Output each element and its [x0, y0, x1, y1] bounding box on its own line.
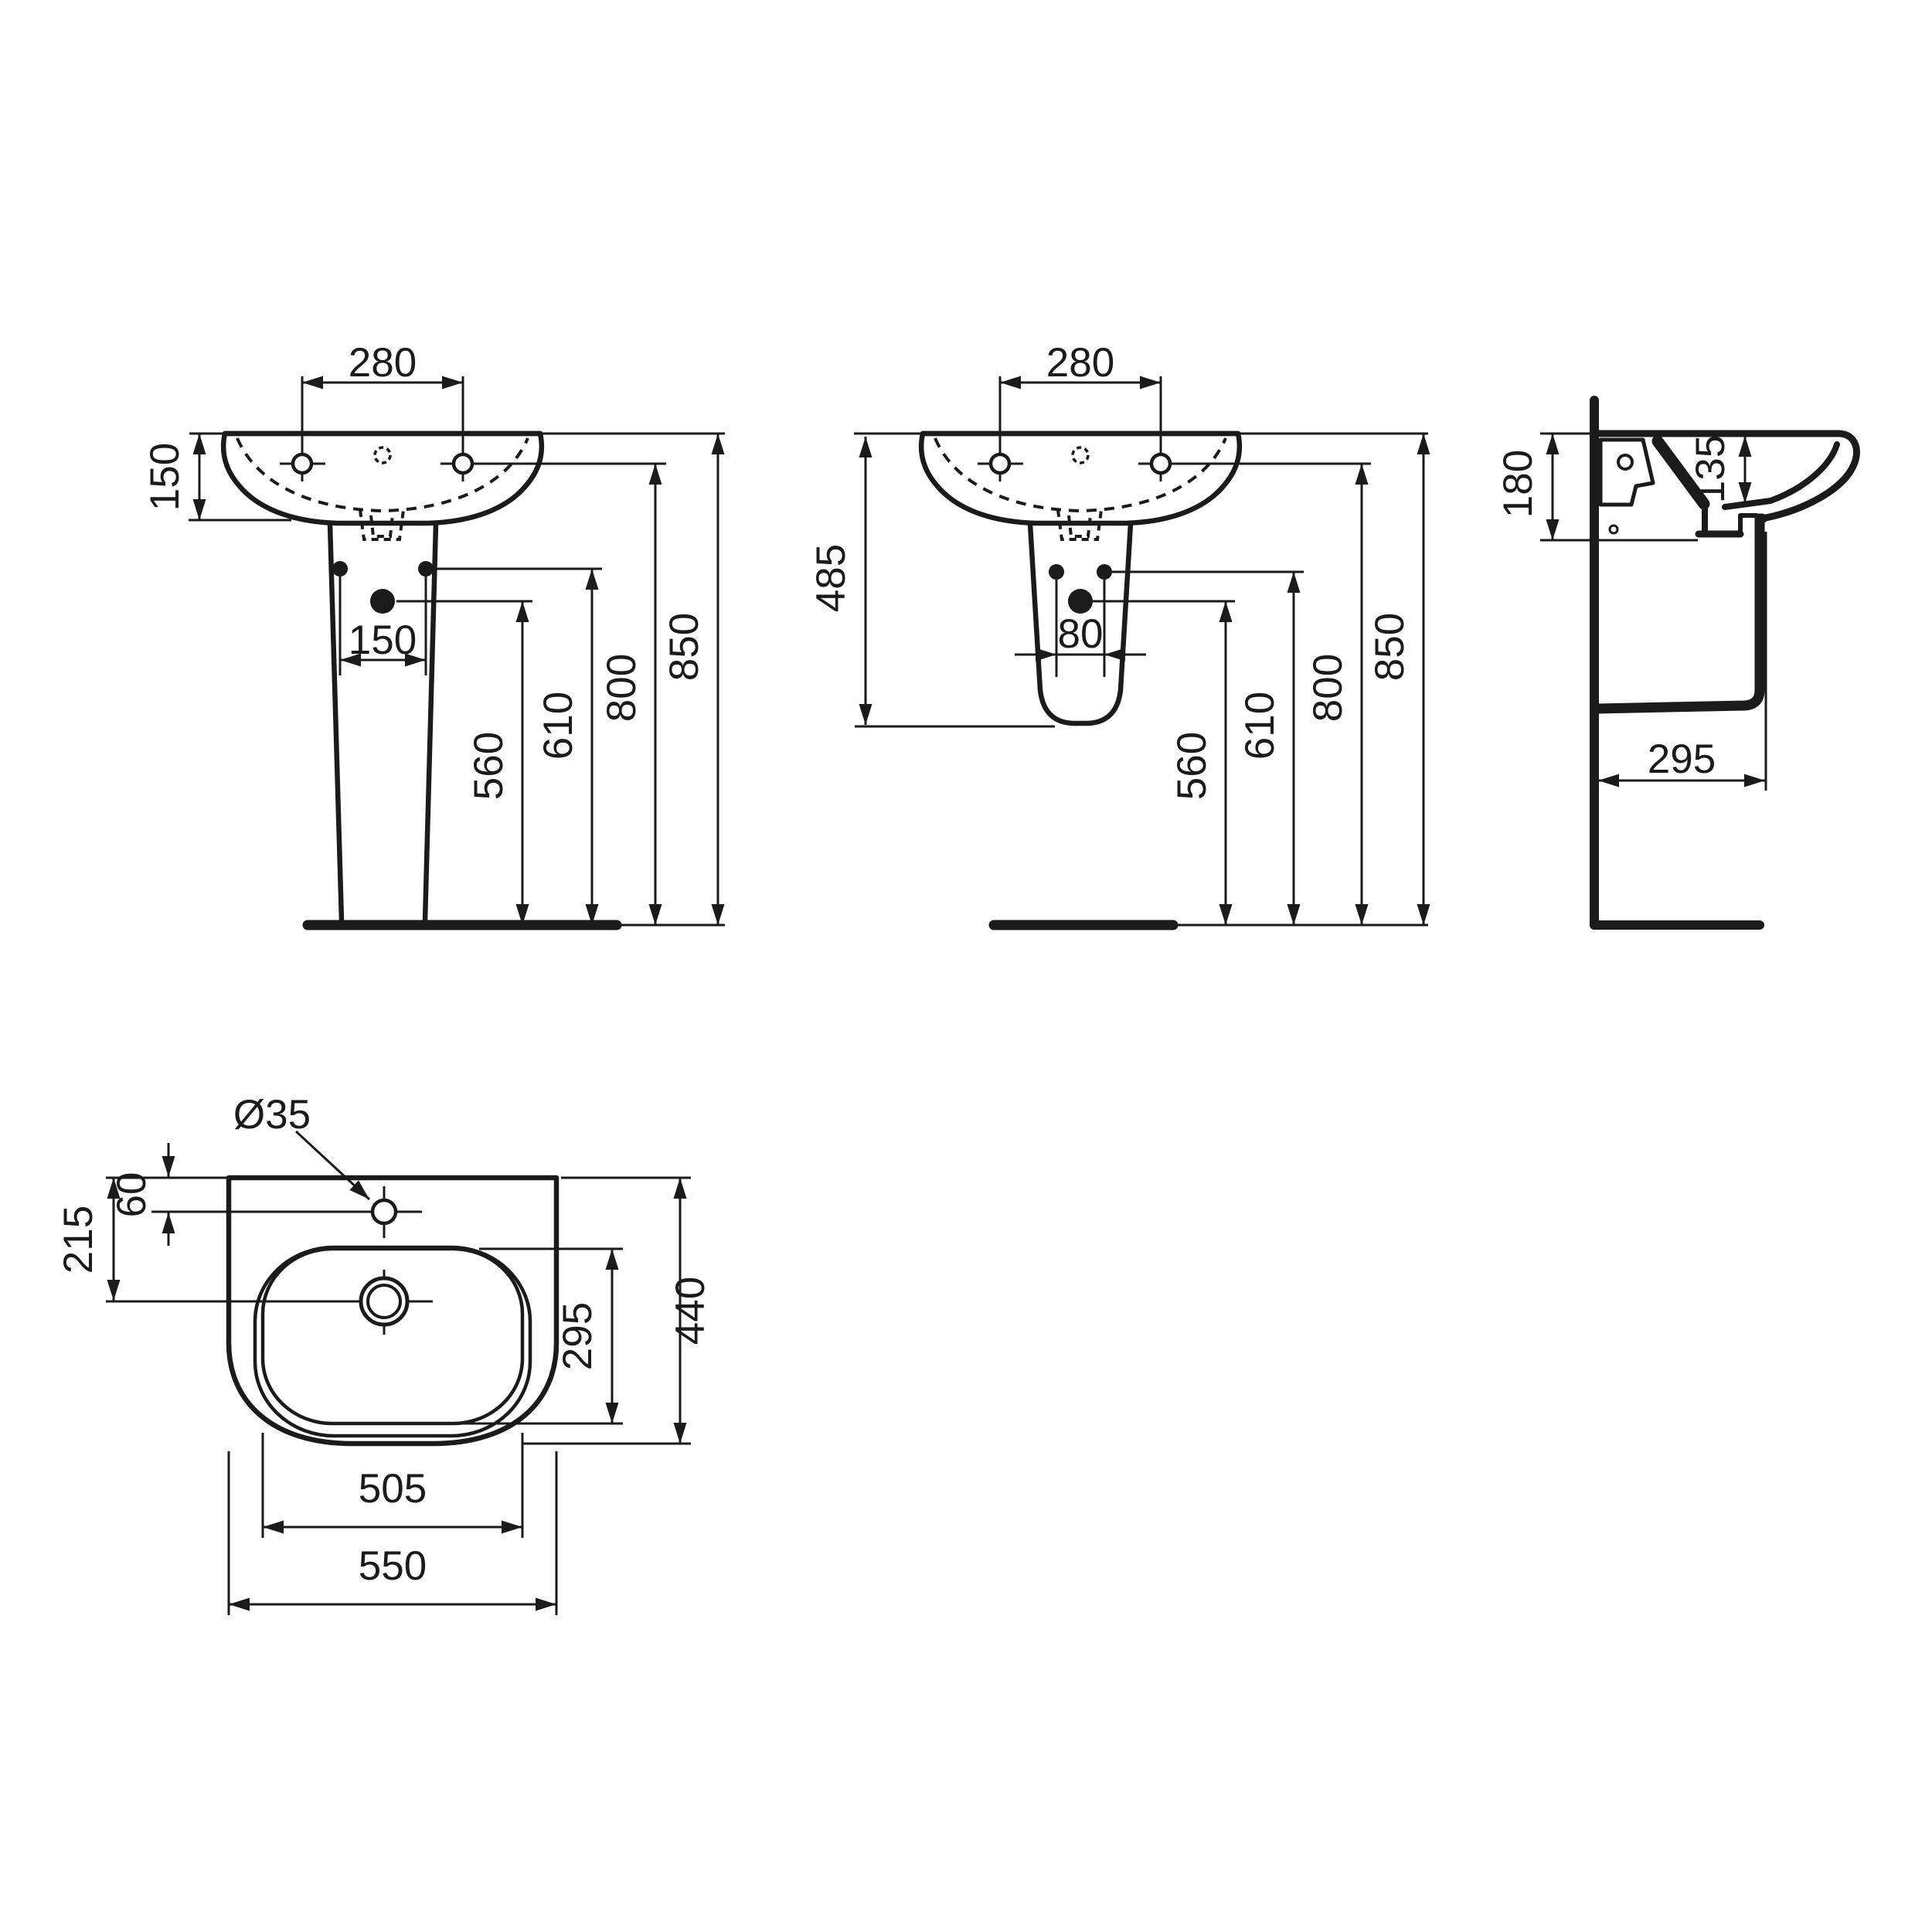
dim-label-rim-height: 850	[1367, 613, 1413, 681]
tap-hole-right	[1151, 454, 1170, 473]
dim-label-taphole-height: 800	[1305, 654, 1351, 722]
dim-label-pedestal-holes: 150	[349, 617, 417, 663]
shroud-profile	[1597, 519, 1762, 709]
dim-label-tap-spacing: 280	[1046, 340, 1114, 386]
view-front-semi-pedestal: 280 485 80 560 610 800 850	[808, 340, 1428, 925]
supply-hole	[1068, 589, 1093, 614]
lower-bolt-hole	[1610, 526, 1617, 533]
dim-label-taphole-offset: 60	[109, 1172, 155, 1218]
fixing-hole-left	[332, 561, 348, 577]
supply-hole	[370, 589, 395, 614]
dim-label-tap-spacing: 280	[349, 340, 417, 386]
fixing-hole-right	[418, 561, 434, 577]
view-side-section: 180 135 295	[1495, 400, 1856, 925]
fixing-bracket	[1600, 440, 1653, 505]
tap-hole-left	[293, 454, 311, 473]
fixing-hole-right	[1097, 564, 1112, 580]
washbasin-dimension-drawing: 280 150 150 560 610 800 850	[0, 0, 1932, 1932]
drain-stub-step	[1740, 515, 1757, 534]
dim-label-supply-height: 560	[1169, 732, 1215, 800]
dim-label-basin-height: 150	[142, 443, 188, 511]
tap-hole-right	[454, 454, 472, 473]
view-plan: Ø35 60 215 295 440 505 550	[56, 1092, 713, 1615]
dim-label-fixing-depth: 180	[1495, 450, 1541, 518]
dim-label-taphole-height: 800	[599, 654, 645, 722]
view-front-full-pedestal: 280 150 150 560 610 800 850	[142, 340, 725, 925]
dim-label-projection: 295	[1648, 736, 1716, 782]
dim-label-bowl-width: 505	[359, 1466, 427, 1512]
dim-label-fixing-height: 610	[536, 692, 581, 760]
dim-label-rim-height: 850	[662, 613, 707, 681]
dim-label-overall-width: 550	[359, 1543, 427, 1589]
tap-hole	[372, 1200, 396, 1223]
tap-hole-left	[991, 454, 1009, 473]
dim-label-supply-height: 560	[466, 732, 512, 800]
technical-drawing-page: 280 150 150 560 610 800 850	[0, 0, 1932, 1932]
dim-label-taphole-diameter: Ø35	[233, 1092, 311, 1138]
dim-label-overall-depth: 440	[668, 1277, 713, 1345]
dim-label-bowl-depth: 295	[555, 1302, 600, 1370]
dim-label-bowl-depth: 135	[1688, 435, 1733, 503]
dim-label-pedestal-holes: 80	[1058, 611, 1104, 657]
dim-label-fixing-height: 610	[1237, 692, 1283, 760]
fixing-hole-left	[1049, 564, 1064, 580]
dim-label-drain-offset: 215	[56, 1206, 101, 1274]
dim-label-semi-pedestal-height: 485	[808, 544, 854, 612]
